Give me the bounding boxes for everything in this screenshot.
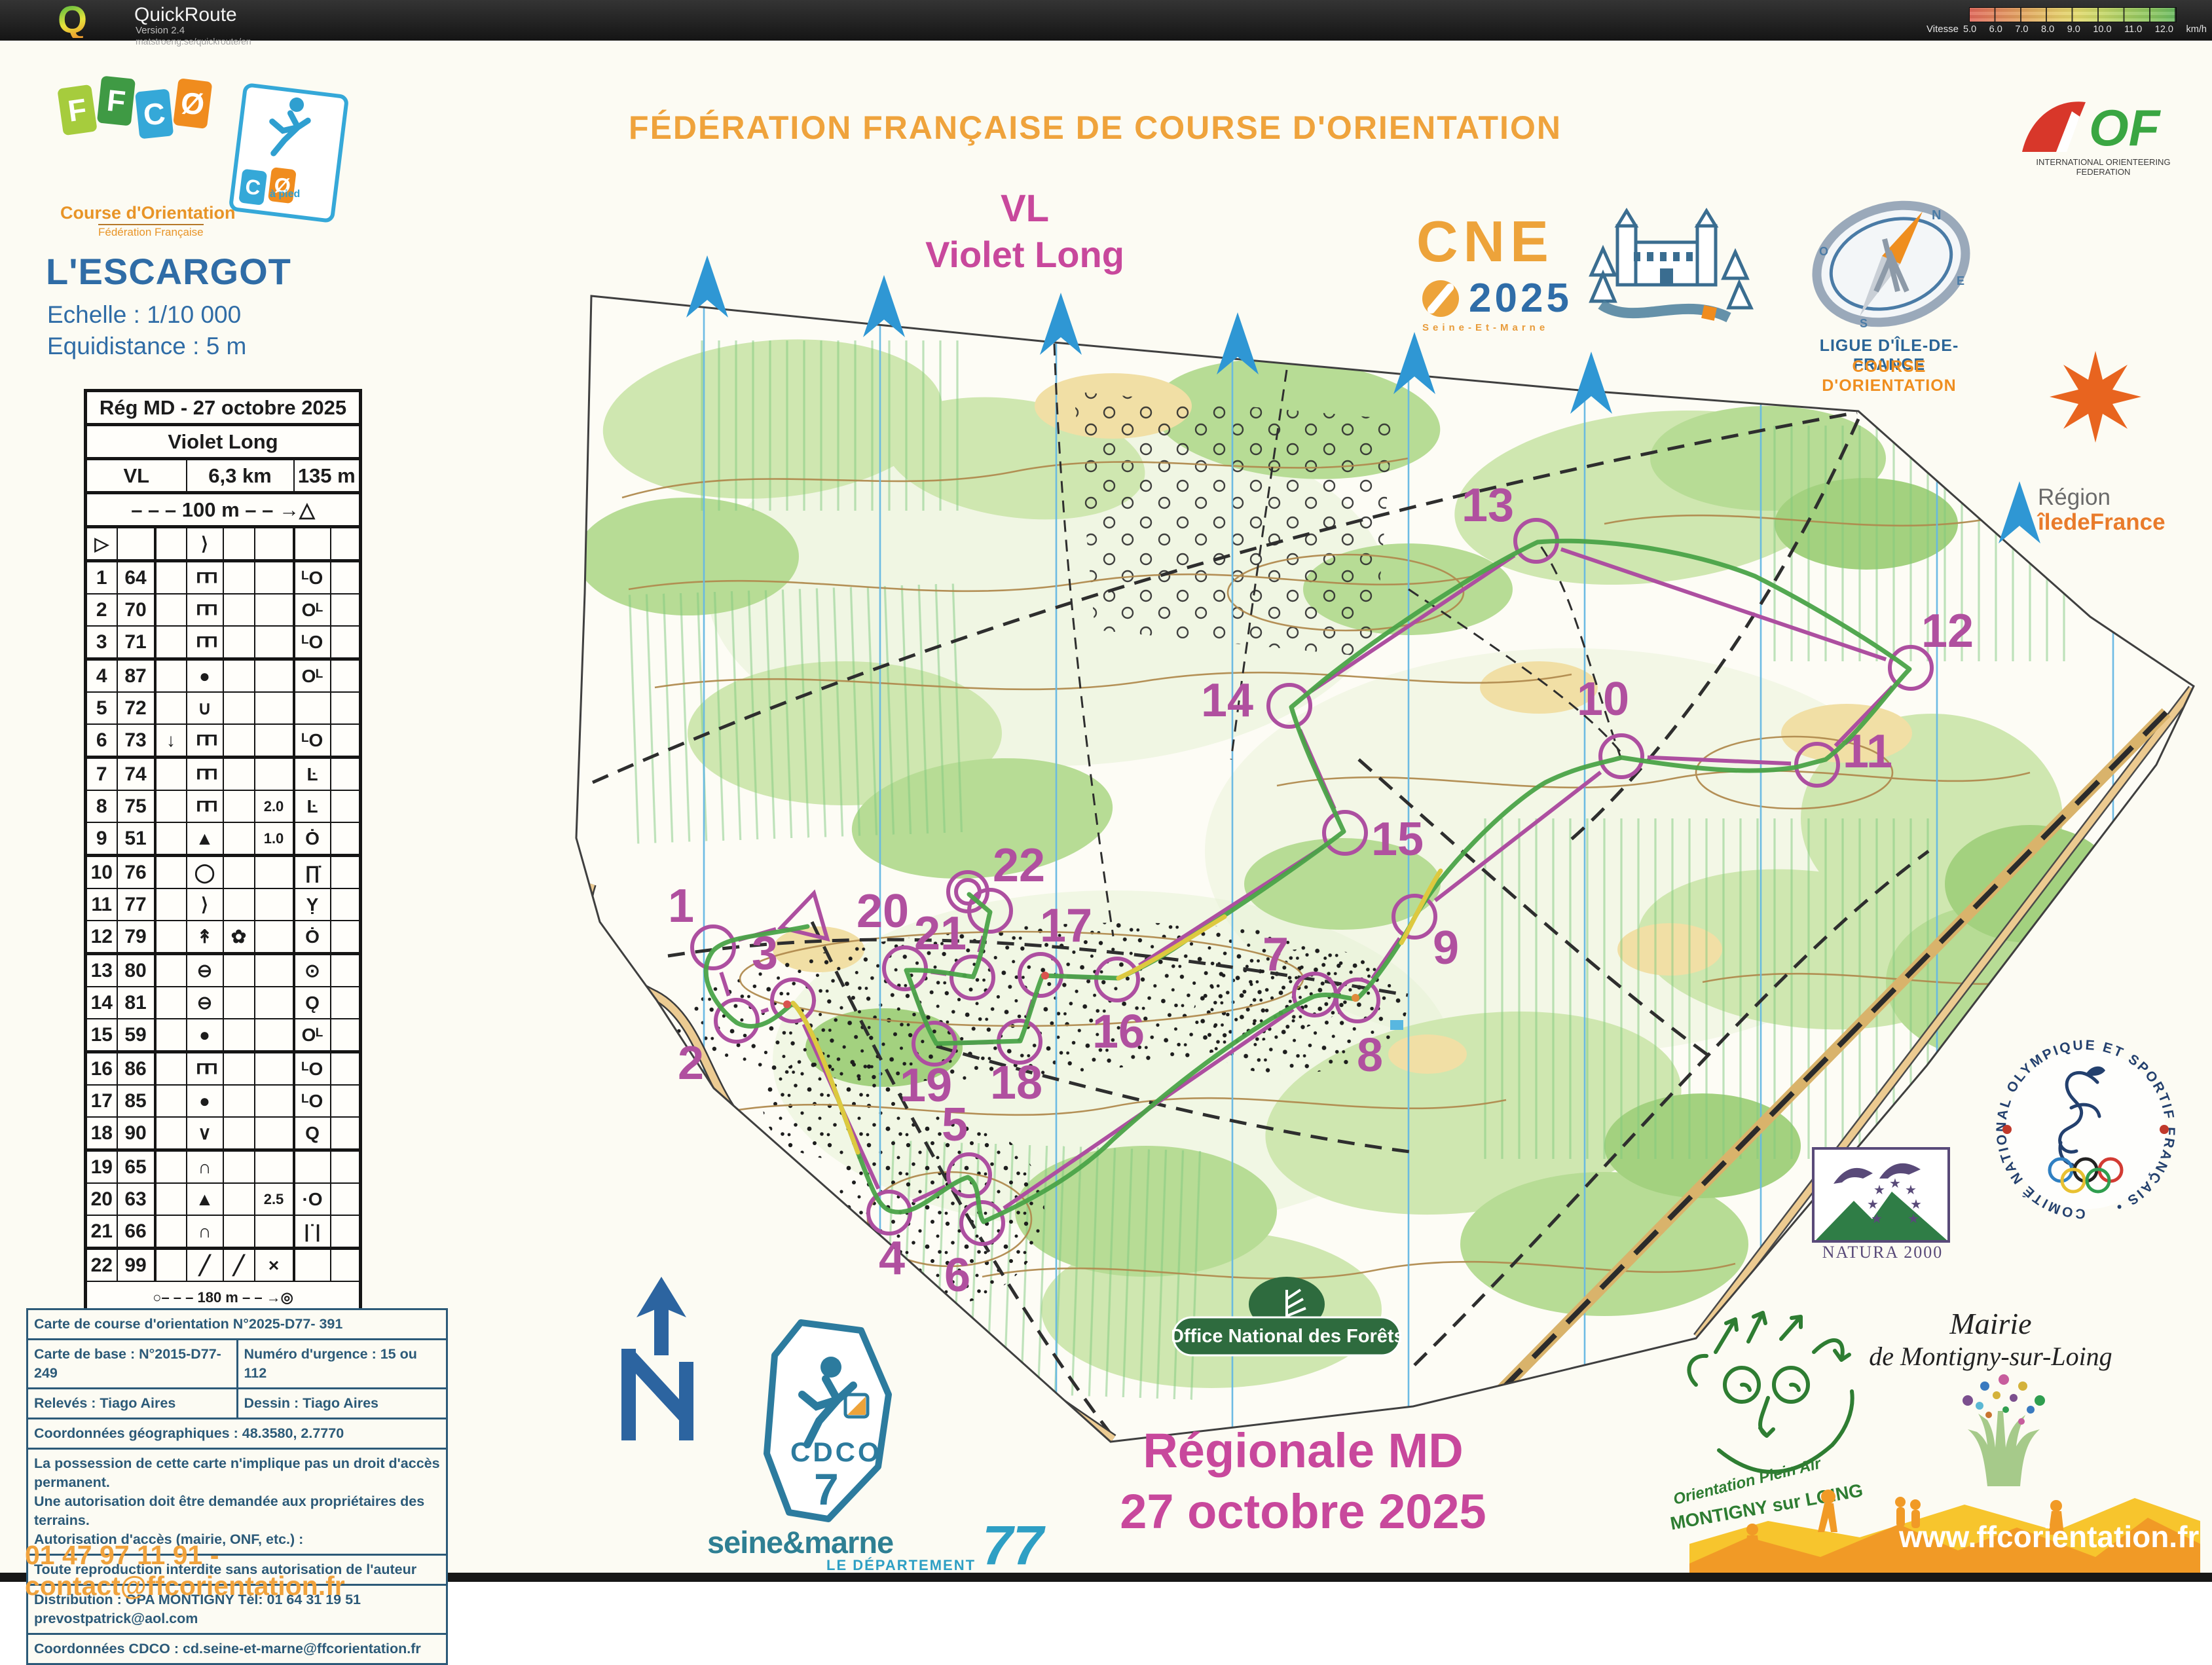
card-cell: 7 (86, 758, 117, 791)
card-cell (223, 626, 255, 659)
card-cell: ⟩ (187, 527, 223, 561)
card-cell (255, 1150, 294, 1184)
control-row: 1686ΠΠᴸO (86, 1052, 361, 1086)
card-cell: Oᴸ (294, 1019, 331, 1052)
speed-tick: 6.0 (1989, 24, 2002, 35)
speed-tick: 5.0 (1963, 24, 1976, 35)
control-row: 371ΠΠᴸO (86, 626, 361, 659)
card-cell (155, 561, 187, 595)
card-cell: ∩ (187, 1215, 223, 1249)
card-cell (117, 527, 155, 561)
card-cell (255, 758, 294, 791)
card-cell: Ŀ (294, 758, 331, 791)
card-cell: 22 (86, 1249, 117, 1282)
card-cell (255, 954, 294, 987)
card-cell: ΠΠ (187, 758, 223, 791)
card-cell: Violet Long (86, 425, 361, 459)
card-cell: 4 (86, 659, 117, 693)
cne-logo-year: 2025 (1469, 275, 1572, 321)
card-cell (255, 888, 294, 921)
card-cell: 76 (117, 856, 155, 889)
control-number: 15 (1371, 813, 1424, 866)
svg-text:Office National des Forêts: Office National des Forêts (1172, 1326, 1401, 1347)
card-cell: Ỵ (294, 888, 331, 921)
card-cell: 19 (86, 1150, 117, 1184)
card-cell (155, 921, 187, 954)
control-number: 12 (1921, 605, 1974, 657)
card-cell (294, 1249, 331, 1282)
ffco-tile-f1: F (57, 84, 98, 136)
control-row: 951▲1.0Ȯ (86, 822, 361, 856)
control-number: 8 (1357, 1029, 1383, 1082)
control-number: 11 (1843, 725, 1892, 778)
card-cell (155, 790, 187, 822)
card-cell (155, 1215, 187, 1249)
card-cell: ▲ (187, 1183, 223, 1215)
control-row: 487●Oᴸ (86, 659, 361, 693)
region-idf-star-icon (2030, 346, 2167, 450)
card-cell: 90 (117, 1117, 155, 1150)
card-cell: Oᴸ (294, 594, 331, 626)
card-cell (223, 1117, 255, 1150)
ligue-caption-2: COURSE D'ORIENTATION (1791, 357, 1987, 395)
footer-info-row: Coordonnées CDCO : cd.seine-et-marne@ffc… (28, 1635, 446, 1663)
card-cell: Rég MD - 27 octobre 2025 (86, 391, 361, 425)
co-a-pied-caption: à pied (270, 189, 300, 200)
card-cell: 1 (86, 561, 117, 595)
card-cell: 2.0 (255, 790, 294, 822)
card-cell (255, 1019, 294, 1052)
app-version: Version 2.4 (136, 25, 185, 36)
course-leg (762, 1010, 769, 1012)
card-cell (155, 987, 187, 1019)
card-cell (223, 790, 255, 822)
card-cell: 20 (86, 1183, 117, 1215)
control-row: 1076◯∏̇ (86, 856, 361, 889)
speed-tick: 11.0 (2124, 24, 2142, 35)
footer-info-row: Carte de course d'orientation N°2025-D77… (28, 1310, 446, 1340)
footer-info-cell: Carte de base : N°2015-D77-249 (28, 1340, 236, 1387)
card-cell: 2 (86, 594, 117, 626)
card-cell (255, 527, 294, 561)
footer-info-row: Carte de base : N°2015-D77-249Numéro d'u… (28, 1340, 446, 1389)
control-number: 13 (1462, 479, 1514, 532)
runner-icon (238, 87, 339, 176)
card-cell (255, 1052, 294, 1086)
speed-color-scale (1969, 7, 2177, 22)
course-name: Violet Long (851, 233, 1198, 276)
card-cell: Q (294, 1117, 331, 1150)
card-cell (331, 790, 361, 822)
card-cell: 10 (86, 856, 117, 889)
card-cell (331, 561, 361, 595)
event-line-2: 27 octobre 2025 (1094, 1482, 1513, 1543)
speed-tick: 10.0 (2093, 24, 2111, 35)
card-cell (223, 1215, 255, 1249)
svg-text:7: 7 (814, 1465, 839, 1514)
card-cell: 63 (117, 1183, 155, 1215)
card-cell: Ȯ (294, 822, 331, 856)
control-number: 2 (678, 1037, 704, 1089)
card-cell: ᴸO (294, 626, 331, 659)
card-cell (223, 594, 255, 626)
control-number: 10 (1577, 673, 1629, 725)
card-cell: ⟩ (187, 888, 223, 921)
north-arrow-icon (609, 1277, 714, 1447)
card-cell: |˙| (294, 1215, 331, 1249)
card-cell: ᴸO (294, 1052, 331, 1086)
control-number: 7 (1263, 928, 1289, 981)
card-cell (223, 527, 255, 561)
card-cell: 17 (86, 1085, 117, 1117)
card-cell (155, 1150, 187, 1184)
card-cell (223, 724, 255, 758)
card-cell (155, 1019, 187, 1052)
card-cell (223, 822, 255, 856)
card-cell (155, 659, 187, 693)
control-number: 22 (993, 839, 1045, 892)
svg-text:★: ★ (1873, 1183, 1885, 1198)
control-row: 1785●ᴸO (86, 1085, 361, 1117)
onf-logo: Office National des Forêts (1172, 1277, 1401, 1375)
card-cell (255, 856, 294, 889)
ffco-tile-o: Ø (173, 78, 212, 129)
footer-info-cell: Coordonnées géographiques : 48.3580, 2.7… (28, 1419, 446, 1448)
region-idf-caption-1: Région (2038, 485, 2111, 511)
card-cell: ΠΠ (187, 790, 223, 822)
card-cell (155, 888, 187, 921)
card-cell: ᴸO (294, 724, 331, 758)
control-number: 4 (879, 1232, 905, 1285)
ligue-compass-icon: N E S O (1807, 193, 1978, 337)
seine-marne-caption: LE DÉPARTEMENT (826, 1557, 976, 1574)
card-cell: 13 (86, 954, 117, 987)
card-cell: 86 (117, 1052, 155, 1086)
svg-text:S: S (1860, 317, 1868, 330)
card-cell: 6,3 km (187, 459, 294, 493)
card-cell: ⊖ (187, 954, 223, 987)
card-cell (155, 1085, 187, 1117)
ffco-website: www.ffcorientation.fr (1899, 1519, 2194, 1554)
card-cell: 75 (117, 790, 155, 822)
card-cell: 64 (117, 561, 155, 595)
control-number: 21 (914, 907, 967, 960)
card-cell: 1.0 (255, 822, 294, 856)
card-cell (223, 856, 255, 889)
card-cell: ⊖ (187, 987, 223, 1019)
control-row: 1279↟✿Ȯ (86, 921, 361, 954)
card-cell: ▲ (187, 822, 223, 856)
cdco-logo: CDCO 7 (750, 1316, 900, 1539)
svg-text:CDCO: CDCO (790, 1436, 882, 1467)
card-cell (223, 888, 255, 921)
card-cell (331, 888, 361, 921)
card-cell: Ŀ (294, 790, 331, 822)
card-cell (331, 758, 361, 791)
natura-2000-caption: NATURA 2000 (1811, 1243, 1955, 1262)
control-row: 1559●Oᴸ (86, 1019, 361, 1052)
card-cell (331, 1019, 361, 1052)
card-cell: 79 (117, 921, 155, 954)
control-row: 164ΠΠᴸO (86, 561, 361, 595)
mairie-line-2: de Montigny-sur-Loing (1866, 1341, 2115, 1372)
card-cell: 51 (117, 822, 155, 856)
card-cell (331, 1085, 361, 1117)
speed-tick: km/h (2186, 24, 2206, 35)
card-cell (155, 527, 187, 561)
svg-text:N: N (1932, 208, 1941, 223)
card-cell (223, 1085, 255, 1117)
card-cell (331, 594, 361, 626)
card-cell: ∪ (187, 692, 223, 724)
card-cell: 21 (86, 1215, 117, 1249)
card-cell (255, 561, 294, 595)
control-number: 18 (990, 1057, 1042, 1109)
card-cell (294, 1150, 331, 1184)
card-cell (331, 921, 361, 954)
card-cell: ΠΠ (187, 561, 223, 595)
control-row: 1177⟩Ỵ (86, 888, 361, 921)
card-cell: ∩ (187, 1150, 223, 1184)
card-cell: ▷ (86, 527, 117, 561)
cne-logo-title: CNE (1416, 208, 1554, 275)
card-cell (223, 692, 255, 724)
card-cell: 6 (86, 724, 117, 758)
control-description-card: Rég MD - 27 octobre 2025Violet LongVL6,3… (84, 389, 360, 1316)
card-cell (223, 1150, 255, 1184)
card-cell (331, 626, 361, 659)
card-cell: 11 (86, 888, 117, 921)
card-cell: 14 (86, 987, 117, 1019)
card-cell: 65 (117, 1150, 155, 1184)
card-cell (155, 692, 187, 724)
control-row: 2299╱╱× (86, 1249, 361, 1282)
card-cell (294, 692, 331, 724)
event-title: Régionale MD 27 octobre 2025 (1094, 1421, 1513, 1542)
control-number: 6 (944, 1249, 970, 1302)
card-cell (155, 822, 187, 856)
card-cell (255, 724, 294, 758)
speed-tick: 8.0 (2041, 24, 2054, 35)
card-cell: ∨ (187, 1117, 223, 1150)
card-cell: ΠΠ (187, 1052, 223, 1086)
card-cell (331, 1249, 361, 1282)
card-cell (223, 1019, 255, 1052)
app-title: QuickRoute (134, 4, 237, 26)
control-row: 875ΠΠ2.0Ŀ (86, 790, 361, 822)
card-cell: ↓ (155, 724, 187, 758)
card-cell: ● (187, 1085, 223, 1117)
card-cell: 72 (117, 692, 155, 724)
card-cell: 5 (86, 692, 117, 724)
card-cell: Oᴸ (294, 659, 331, 693)
svg-text:★: ★ (1871, 1212, 1883, 1226)
card-cell (223, 758, 255, 791)
card-cell (294, 527, 331, 561)
control-number: 16 (1092, 1006, 1145, 1058)
footer-info-cell: Coordonnées CDCO : cd.seine-et-marne@ffc… (28, 1635, 446, 1663)
region-idf-caption-2: îledeFrance (2038, 509, 2166, 536)
footer-info-cell: Dessin : Tiago Aires (236, 1389, 447, 1418)
ffco-contact: 01 47 97 11 91 - contact@ffcorientation.… (25, 1540, 483, 1601)
control-row: 774ΠΠĿ (86, 758, 361, 791)
card-cell: 135 m (294, 459, 361, 493)
card-cell: ·O (294, 1183, 331, 1215)
svg-text:OF: OF (2089, 99, 2162, 156)
card-cell: ╱ (187, 1249, 223, 1282)
card-cell: 81 (117, 987, 155, 1019)
card-cell: ↟ (187, 921, 223, 954)
card-cell: 15 (86, 1019, 117, 1052)
control-description-table: Rég MD - 27 octobre 2025Violet LongVL6,3… (84, 389, 362, 1316)
control-number: 14 (1201, 674, 1253, 727)
control-row: 270ΠΠOᴸ (86, 594, 361, 626)
card-cell: 99 (117, 1249, 155, 1282)
svg-text:E: E (1957, 274, 1964, 287)
ffco-logo: F F C Ø (60, 86, 210, 134)
card-cell: ✿ (223, 921, 255, 954)
card-cell (155, 1183, 187, 1215)
card-cell (223, 1183, 255, 1215)
card-cell: 71 (117, 626, 155, 659)
card-cell (331, 1052, 361, 1086)
federation-title: FÉDÉRATION FRANÇAISE DE COURSE D'ORIENTA… (589, 109, 1601, 147)
card-cell (255, 1215, 294, 1249)
card-cell: ∏̇ (294, 856, 331, 889)
card-cell (155, 856, 187, 889)
iof-caption: INTERNATIONAL ORIENTEERING FEDERATION (2012, 157, 2195, 177)
control-number: 9 (1433, 922, 1459, 974)
footer-info-cell: Carte de course d'orientation N°2025-D77… (28, 1310, 446, 1338)
card-cell (331, 954, 361, 987)
app-website: matstroeng.se/quickroute/en (136, 36, 251, 46)
card-cell (331, 527, 361, 561)
footer-info-row: Relevés : Tiago AiresDessin : Tiago Aire… (28, 1389, 446, 1419)
footer-info-cell: Numéro d'urgence : 15 ou 112 (236, 1340, 447, 1387)
card-cell (331, 659, 361, 693)
svg-text:★: ★ (1889, 1177, 1901, 1191)
card-cell (223, 1052, 255, 1086)
svg-text:O: O (1819, 245, 1828, 258)
footer-info-cell: La possession de cette carte n'implique … (28, 1450, 446, 1554)
svg-text:★: ★ (1910, 1198, 1922, 1212)
card-cell: ᴸO (294, 1085, 331, 1117)
card-cell (255, 594, 294, 626)
control-number: 19 (900, 1059, 952, 1112)
seine-marne-number: 77 (982, 1514, 1043, 1577)
event-line-1: Régionale MD (1094, 1421, 1513, 1482)
card-cell (223, 561, 255, 595)
ffco-footer-banner (1689, 1459, 2200, 1573)
svg-text:★: ★ (1908, 1212, 1919, 1226)
card-cell: 73 (117, 724, 155, 758)
card-cell (255, 626, 294, 659)
card-cell (223, 954, 255, 987)
card-cell (331, 1117, 361, 1150)
card-cell (255, 659, 294, 693)
ffco-subcaption: Fédération Française (98, 224, 204, 239)
card-cell: ╱ (223, 1249, 255, 1282)
card-cell (155, 1249, 187, 1282)
card-cell: ⊙ (294, 954, 331, 987)
co-tile-c: C (238, 169, 267, 206)
card-cell: ΠΠ (187, 594, 223, 626)
control-number: 17 (1040, 900, 1092, 952)
card-cell: ΠΠ (187, 724, 223, 758)
card-cell: 3 (86, 626, 117, 659)
quickroute-window: { "titlebar": { "app_name": "QuickRoute"… (0, 0, 2212, 1582)
mairie-caption: Mairie de Montigny-sur-Loing (1866, 1306, 2115, 1372)
ffco-tile-c: C (135, 88, 174, 139)
control-row: 1965∩ (86, 1150, 361, 1184)
card-cell (155, 758, 187, 791)
card-cell (331, 1215, 361, 1249)
card-cell: VL (86, 459, 187, 493)
svg-text:★: ★ (1867, 1198, 1879, 1212)
card-cell (255, 692, 294, 724)
card-cell (223, 659, 255, 693)
card-cell: 85 (117, 1085, 155, 1117)
card-cell: 70 (117, 594, 155, 626)
card-cell (155, 626, 187, 659)
card-cell: 87 (117, 659, 155, 693)
iof-logo: OF (2017, 92, 2194, 157)
card-cell (255, 921, 294, 954)
card-cell (331, 822, 361, 856)
control-row: 2166∩|˙| (86, 1215, 361, 1249)
speed-legend-label: Vitesse (1926, 24, 1959, 35)
card-cell (331, 692, 361, 724)
card-cell (331, 987, 361, 1019)
card-cell: ᴸO (294, 561, 331, 595)
card-cell: 74 (117, 758, 155, 791)
card-cell: Ȯ (294, 921, 331, 954)
card-cell (223, 987, 255, 1019)
control-row: 1380⊖⊙ (86, 954, 361, 987)
footer-info-row: Coordonnées géographiques : 48.3580, 2.7… (28, 1419, 446, 1450)
card-cell: 8 (86, 790, 117, 822)
control-row: 572∪ (86, 692, 361, 724)
control-number: 1 (668, 880, 694, 932)
course-code: VL (851, 187, 1198, 230)
map-footer-info: Carte de course d'orientation N°2025-D77… (26, 1308, 448, 1665)
control-row: 673↓ΠΠᴸO (86, 724, 361, 758)
speed-tick: 7.0 (2015, 24, 2028, 35)
card-cell: 9 (86, 822, 117, 856)
mairie-line-1: Mairie (1866, 1306, 2115, 1341)
card-cell (331, 1183, 361, 1215)
co-a-pied-logo: C Ø (229, 82, 350, 223)
cne-compass-icon (1420, 278, 1462, 320)
speed-tick-labels: 5.06.07.08.09.010.011.012.0km/h (1963, 24, 2207, 35)
control-row: 1890∨Q (86, 1117, 361, 1150)
card-cell (155, 1117, 187, 1150)
control-row: 2063▲2.5·O (86, 1183, 361, 1215)
card-cell: 18 (86, 1117, 117, 1150)
card-cell: ● (187, 1019, 223, 1052)
svg-text:★: ★ (1905, 1183, 1917, 1198)
control-row: 1481⊖Ǫ (86, 987, 361, 1019)
card-cell (255, 987, 294, 1019)
card-cell: ● (187, 659, 223, 693)
card-cell: 66 (117, 1215, 155, 1249)
cne-chateau-icon (1572, 196, 1761, 340)
card-cell (331, 1150, 361, 1184)
control-number: 20 (857, 885, 909, 938)
natura-2000-logo: ★★★ ★★★★ (1811, 1146, 1951, 1244)
speed-tick: 12.0 (2155, 24, 2173, 35)
card-cell (155, 954, 187, 987)
